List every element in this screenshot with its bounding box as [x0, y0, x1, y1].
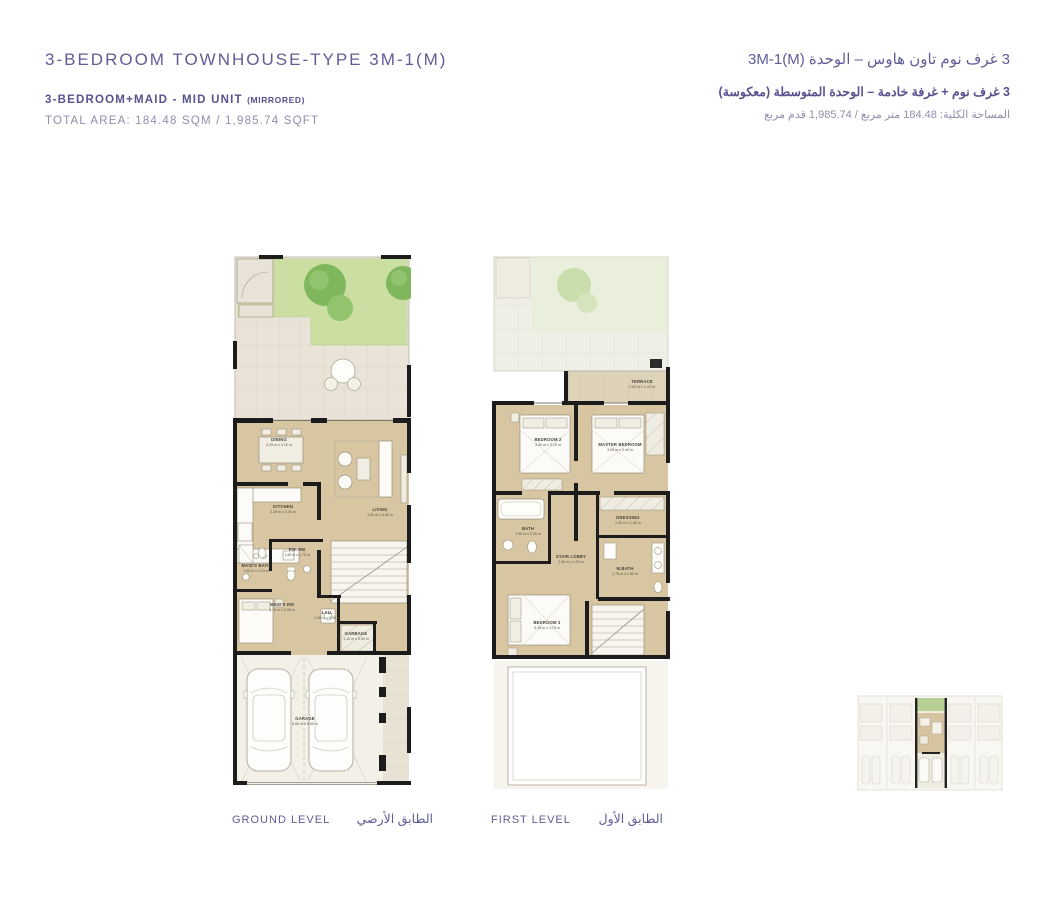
- room-label-garage: GARAGE 5.60 m x 5.50 m: [292, 717, 318, 727]
- header-arabic: 3 غرف نوم تاون هاوس – الوحدة 3M-1(M) 3 غ…: [719, 50, 1010, 121]
- room-label-pw-rm: PW. RM 1.45 m x 1.75 m: [284, 548, 310, 558]
- room-label-kitchen: KITCHEN 3.15 m x 2.40 m: [270, 505, 296, 515]
- site-key-plan: [856, 692, 1004, 796]
- page-title-arabic: 3 غرف نوم تاون هاوس – الوحدة 3M-1(M): [719, 50, 1010, 68]
- highlighted-unit: [915, 698, 947, 788]
- room-label-living: LIVING 3.50 m x 5.49 m: [367, 508, 393, 518]
- dressing-wardrobe: [600, 497, 664, 510]
- unit-subtitle-arabic: 3 غرف نوم + غرفة خادمة – الوحدة المتوسطة…: [719, 84, 1010, 99]
- mirrored-note: (MIRRORED): [247, 95, 305, 105]
- room-label-bedroom3: BEDROOM 3 3.15 m x 3.75 m: [533, 621, 560, 631]
- dining-table-icon: [259, 429, 303, 471]
- total-area-arabic: المساحة الكلية: 184.48 متر مربع / 1,985.…: [719, 108, 1010, 121]
- ground-level-plan-svg: [233, 255, 411, 795]
- room-label-bath: BATH 1.95 m x 2.30 m: [515, 527, 541, 537]
- first-level-plan-svg: [492, 255, 670, 795]
- unit-subtitle: 3-BEDROOM+MAID - MID UNIT (MIRRORED): [45, 94, 447, 106]
- garden-area: [233, 255, 411, 420]
- entry-walkway: [383, 655, 409, 785]
- room-label-bedroom2: BEDROOM 2 3.40 m x 3.15 m: [534, 438, 561, 448]
- room-label-m-bath: M.BATH 2.75 m x 1.60 m: [612, 567, 638, 577]
- room-label-maids-rm: MAID'S RM 3.15 m x 2.30 m: [269, 603, 295, 613]
- garage-level: [233, 655, 411, 785]
- room-label-lau: LAU. 1.35 m x 0.90 m: [314, 611, 340, 621]
- room-label-stair-lobby: STAIR LOBBY 2.30 m x 1.20 m: [556, 555, 586, 565]
- room-label-maids-bath: MAID'S BATH 1.05 m x 2.15 m: [241, 564, 270, 574]
- first-level-caption-en: FIRST LEVEL: [491, 814, 571, 826]
- car-icon: [244, 669, 294, 771]
- ground-level-caption-en: GROUND LEVEL: [232, 814, 330, 826]
- room-label-master-bedroom: MASTER BEDROOM 3.05 m x 3.40 m: [598, 443, 641, 453]
- void-over-garage: [494, 661, 668, 789]
- header-english: 3-BEDROOM TOWNHOUSE-TYPE 3M-1(M) 3-BEDRO…: [45, 50, 447, 127]
- ground-level-plan: DINING 3.25 m x 3.10 m KITCHEN 3.15 m x …: [233, 255, 411, 795]
- first-level-plan: TERRACE 2.00 m x 1.20 m BEDROOM 2 3.40 m…: [492, 255, 670, 795]
- garden-shed: [237, 259, 273, 317]
- floorplan-brochure-page: 3-BEDROOM TOWNHOUSE-TYPE 3M-1(M) 3-BEDRO…: [0, 0, 1055, 900]
- room-label-terrace: TERRACE 2.00 m x 1.20 m: [629, 380, 655, 390]
- room-label-dining: DINING 3.25 m x 3.10 m: [266, 438, 292, 448]
- page-title: 3-BEDROOM TOWNHOUSE-TYPE 3M-1(M): [45, 50, 447, 70]
- ground-level-caption-ar: الطابق الأرضي: [357, 811, 433, 826]
- stairs-icon-first: [592, 605, 644, 655]
- room-label-dressing: DRESSING 2.30 m x 1.05 m: [615, 516, 641, 526]
- stairs-icon-ground: [331, 541, 407, 603]
- room-label-garbage: GARBAGE 1.15 m x 0.90 m: [343, 632, 369, 642]
- total-area-en: TOTAL AREA: 184.48 SQM / 1,985.74 SQFT: [45, 115, 447, 127]
- faded-garden: [494, 257, 668, 371]
- unit-subtitle-text: 3-BEDROOM+MAID - MID UNIT: [45, 94, 243, 106]
- roof-unit: [650, 359, 662, 368]
- first-level-caption-ar: الطابق الأول: [599, 811, 663, 826]
